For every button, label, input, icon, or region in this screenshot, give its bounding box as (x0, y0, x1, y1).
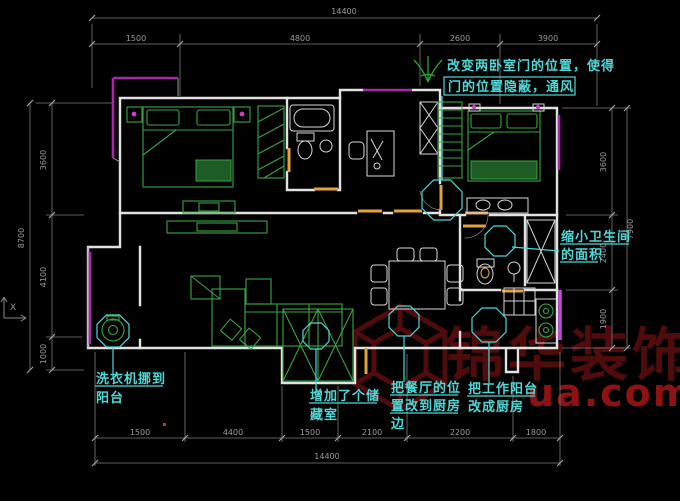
dim-top-seg-0: 1500 (126, 34, 146, 43)
side-table (246, 279, 271, 304)
tv-console (167, 221, 267, 233)
toilet-bathroom1 (297, 133, 314, 159)
lamp-icon (472, 105, 476, 109)
pedestal-sink (508, 262, 520, 282)
dim-top-seg-3: 3900 (538, 34, 558, 43)
bathtub (290, 105, 334, 131)
dim-top-total: 14400 (331, 7, 356, 16)
note-dining-line2: 置改到厨房 (391, 398, 461, 414)
note-doors-line2: 门的位置隐蔽，通风 (448, 79, 574, 95)
shower-box (527, 220, 555, 283)
wardrobe-master (258, 106, 284, 178)
note-kitchen-line1: 把工作阳台 (468, 381, 538, 397)
note-bathroom-line1: 缩小卫生间 (561, 229, 631, 245)
note-doors-line1: 改变两卧室门的位置，使得 (447, 58, 615, 74)
dimension-lines-right (612, 108, 627, 348)
watermark-hexagon-inner-icon (374, 328, 426, 388)
dim-right-seg-0: 3600 (599, 152, 608, 172)
dim-left-total: 8700 (17, 228, 26, 248)
dim-left-seg-2: 1000 (39, 344, 48, 364)
marker-bathroom (485, 226, 515, 256)
interior-walls (120, 98, 557, 348)
note-dining-line3: 边 (390, 417, 405, 432)
dim-bottom-total: 14400 (314, 452, 339, 461)
toilet-bathroom2 (477, 259, 494, 284)
ucs-icon: X (1, 297, 26, 321)
lamp-icon (536, 105, 540, 109)
lamp-icon (240, 112, 245, 117)
dim-bottom-seg-4: 2200 (450, 428, 470, 437)
dim-bottom-seg-1: 4400 (223, 428, 243, 437)
bed-master (143, 107, 233, 187)
plant-icon (414, 56, 442, 82)
nightstand-right (234, 107, 250, 122)
note-bathroom-line2: 的面积 (561, 247, 603, 263)
lamp-icon (132, 112, 137, 117)
note-washer-line1: 洗衣机挪到 (96, 371, 166, 387)
marker-storage (303, 323, 329, 349)
study-chair (349, 142, 364, 159)
dim-bottom-seg-0: 1500 (130, 428, 150, 437)
bed-second (468, 111, 540, 181)
dim-right-seg-2: 1900 (599, 309, 608, 329)
cad-drawing-canvas[interactable]: 锦华装饰 ua.com 14400 1500 4800 2600 3900 15… (0, 0, 680, 501)
note-storage-line2: 藏室 (310, 407, 338, 423)
dining-table (371, 248, 463, 309)
dim-left-seg-1: 4100 (39, 267, 48, 287)
note-storage-line1: 增加了个储 (310, 388, 380, 404)
watermark-domain: ua.com (527, 371, 680, 415)
dim-top-seg-1: 4800 (290, 34, 310, 43)
vanity-counter (467, 198, 528, 213)
study-closet (420, 102, 438, 154)
dim-bottom-seg-5: 1800 (526, 428, 546, 437)
nightstand-left (127, 107, 142, 122)
cad-viewport[interactable]: 锦华装饰 ua.com 14400 1500 4800 2600 3900 15… (0, 0, 680, 501)
study-desk (367, 131, 394, 176)
note-dining-line1: 把餐厅的位 (391, 380, 461, 396)
note-kitchen-line2: 改成厨房 (468, 399, 524, 415)
balcony-window-top-left (113, 78, 178, 158)
dim-bottom-seg-3: 2100 (362, 428, 382, 437)
dimension-lines-top (92, 18, 597, 44)
dim-top-seg-2: 2600 (450, 34, 470, 43)
sink-bathroom1 (320, 140, 332, 152)
note-washer-line2: 阳台 (96, 390, 124, 406)
dim-bottom-seg-2: 1500 (300, 428, 320, 437)
ucs-x-label: X (10, 303, 16, 313)
red-dot-artifact (163, 423, 166, 426)
dim-left-seg-0: 3600 (39, 150, 48, 170)
dimension-lines-left (30, 103, 52, 370)
washing-machine (102, 316, 124, 341)
dresser-master (183, 201, 235, 213)
coffee-table (191, 276, 220, 299)
bathroom2-door (463, 213, 488, 226)
